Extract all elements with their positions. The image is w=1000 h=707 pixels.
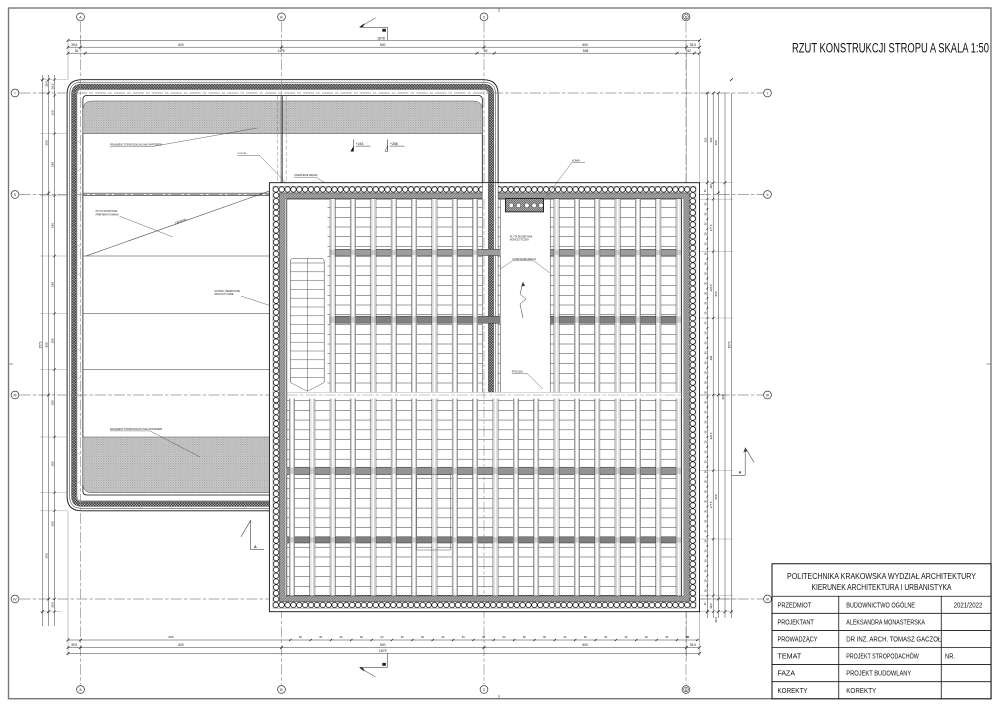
svg-text:+243: +243 (356, 142, 364, 146)
svg-text:52: 52 (687, 49, 691, 53)
svg-text:D: D (685, 688, 688, 692)
svg-text:BUDOWNICTWO OGÓLNE: BUDOWNICTWO OGÓLNE (846, 600, 915, 609)
svg-text:I: I (767, 91, 768, 95)
svg-text:2021/2022: 2021/2022 (954, 600, 983, 609)
svg-text:D: D (685, 15, 688, 19)
svg-text:200: 200 (709, 355, 713, 360)
svg-text:52: 52 (75, 49, 79, 53)
svg-text:300: 300 (709, 137, 713, 142)
svg-text:+268: +268 (390, 142, 398, 146)
svg-text:300: 300 (44, 553, 48, 558)
svg-text:177,5: 177,5 (709, 224, 713, 231)
svg-text:39,5: 39,5 (71, 43, 77, 47)
svg-text:548: 548 (583, 49, 589, 53)
svg-text:A: A (739, 470, 742, 474)
svg-text:600: 600 (582, 643, 588, 647)
svg-text:60: 60 (421, 635, 424, 639)
svg-text:PROJEKT STROPODACHÓW: PROJEKT STROPODACHÓW (846, 652, 919, 661)
svg-text:KOREKTY: KOREKTY (778, 686, 808, 695)
svg-text:600: 600 (380, 643, 386, 647)
svg-text:POLITECHNIKA KRAKOWSKA WYDZIAŁ: POLITECHNIKA KRAKOWSKA WYDZIAŁ ARCHITEKT… (787, 572, 976, 581)
svg-text:C: C (483, 15, 486, 19)
svg-text:300: 300 (44, 140, 48, 145)
svg-text:KIERUNEK ARCHITEKTURA I URBANI: KIERUNEK ARCHITEKTURA I URBANISTYKA (812, 583, 952, 592)
svg-text:39,5: 39,5 (709, 603, 713, 609)
svg-text:1879: 1879 (379, 649, 387, 653)
svg-text:PROWADZĄCY: PROWADZĄCY (778, 635, 818, 644)
svg-text:PRZEDMIOT: PRZEDMIOT (778, 600, 812, 609)
svg-text:180: 180 (50, 338, 54, 343)
svg-text:60: 60 (340, 635, 343, 639)
svg-text:TEMAT: TEMAT (778, 652, 802, 661)
svg-text:MONOLITYCZNE: MONOLITYCZNE (214, 293, 233, 296)
svg-text:600: 600 (168, 635, 173, 639)
svg-text:222,5: 222,5 (709, 284, 713, 291)
svg-text:60: 60 (665, 635, 668, 639)
svg-text:620: 620 (714, 291, 718, 296)
svg-text:FAZA: FAZA (778, 669, 796, 678)
svg-text:60: 60 (625, 635, 628, 639)
svg-text:A: A (254, 545, 257, 549)
svg-text:1579: 1579 (727, 341, 731, 348)
svg-text:FRAGMENT STROPODACHU NAD PARTE: FRAGMENT STROPODACHU NAD PARTEREM (110, 428, 162, 431)
svg-text:NR.: NR. (945, 652, 955, 661)
svg-text:60: 60 (401, 635, 404, 639)
svg-text:II: II (767, 193, 769, 197)
svg-text:PODCIĄG: PODCIĄG (512, 371, 523, 374)
svg-text:60: 60 (441, 635, 444, 639)
svg-text:60: 60 (299, 635, 302, 639)
svg-text:IV: IV (13, 597, 17, 601)
svg-text:180: 180 (50, 282, 54, 287)
svg-text:60: 60 (360, 635, 363, 639)
svg-text:KOREKTY: KOREKTY (846, 686, 876, 695)
svg-text:600: 600 (178, 43, 184, 47)
svg-text:II: II (14, 193, 16, 197)
svg-text:39,5: 39,5 (44, 81, 48, 87)
svg-text:60: 60 (543, 635, 546, 639)
svg-text:IV: IV (766, 597, 770, 601)
svg-text:60: 60 (523, 635, 526, 639)
svg-text:39,5: 39,5 (50, 83, 54, 89)
svg-text:PREFABRYKOWANA: PREFABRYKOWANA (96, 213, 120, 216)
svg-text:OCIEPLENIE WEŁNĄ: OCIEPLENIE WEŁNĄ (512, 258, 536, 261)
svg-text:PROJEKT BUDOWLANY: PROJEKT BUDOWLANY (846, 669, 911, 678)
svg-text:600: 600 (380, 43, 386, 47)
svg-text:MONOLITYCZNA: MONOLITYCZNA (510, 239, 529, 242)
svg-text:60: 60 (645, 635, 648, 639)
svg-text:DR INZ. ARCH. TOMASZ GACZOŁ: DR INZ. ARCH. TOMASZ GACZOŁ (846, 635, 941, 644)
svg-text:ALEKSANDRA MONASTERSKA: ALEKSANDRA MONASTERSKA (846, 617, 925, 626)
svg-text:177,5: 177,5 (709, 501, 713, 508)
svg-text:300: 300 (50, 521, 54, 526)
svg-text:1878: 1878 (377, 36, 385, 40)
svg-text:60: 60 (462, 635, 465, 639)
svg-text:180: 180 (50, 223, 54, 228)
svg-text:KOMIN: KOMIN (572, 159, 580, 162)
svg-text:60: 60 (380, 635, 383, 639)
svg-text:60: 60 (502, 635, 505, 639)
svg-text:620: 620 (714, 494, 718, 499)
svg-text:III: III (766, 393, 769, 397)
svg-text:60: 60 (604, 635, 607, 639)
svg-text:1175: 1175 (278, 49, 285, 53)
svg-text:39,5: 39,5 (50, 602, 54, 608)
svg-text:180: 180 (50, 400, 54, 405)
svg-text:39,5: 39,5 (690, 43, 696, 47)
svg-text:900: 900 (44, 342, 48, 347)
svg-text:39,5: 39,5 (714, 617, 718, 623)
svg-text:60: 60 (584, 635, 587, 639)
svg-text:180: 180 (50, 162, 54, 167)
svg-text:OCIEPLENIE WEŁNĄ: OCIEPLENIE WEŁNĄ (294, 174, 318, 177)
svg-text:120: 120 (50, 110, 54, 115)
svg-text:C: C (483, 688, 486, 692)
svg-text:39,5: 39,5 (71, 643, 77, 647)
svg-text:POZIOM: POZIOM (238, 153, 247, 155)
svg-text:900: 900 (721, 394, 725, 399)
svg-text:39,5: 39,5 (709, 183, 713, 189)
svg-text:60: 60 (319, 635, 322, 639)
svg-text:300: 300 (703, 137, 707, 142)
svg-text:52: 52 (484, 49, 488, 53)
svg-text:1579: 1579 (38, 341, 42, 348)
svg-text:PROJEKTANT: PROJEKTANT (778, 617, 815, 626)
svg-text:222,5: 222,5 (709, 432, 713, 439)
svg-text:600: 600 (582, 43, 588, 47)
svg-text:180: 180 (50, 461, 54, 466)
svg-text:60: 60 (564, 635, 567, 639)
svg-text:60: 60 (482, 635, 485, 639)
svg-text:RZUT KONSTRUKCJI STROPU A SKAL: RZUT KONSTRUKCJI STROPU A SKALA 1:50 (792, 40, 989, 55)
svg-text:III: III (14, 393, 17, 397)
svg-text:600: 600 (178, 643, 184, 647)
svg-text:I: I (15, 91, 16, 95)
svg-text:300: 300 (714, 140, 718, 145)
svg-text:39,5: 39,5 (690, 643, 696, 647)
